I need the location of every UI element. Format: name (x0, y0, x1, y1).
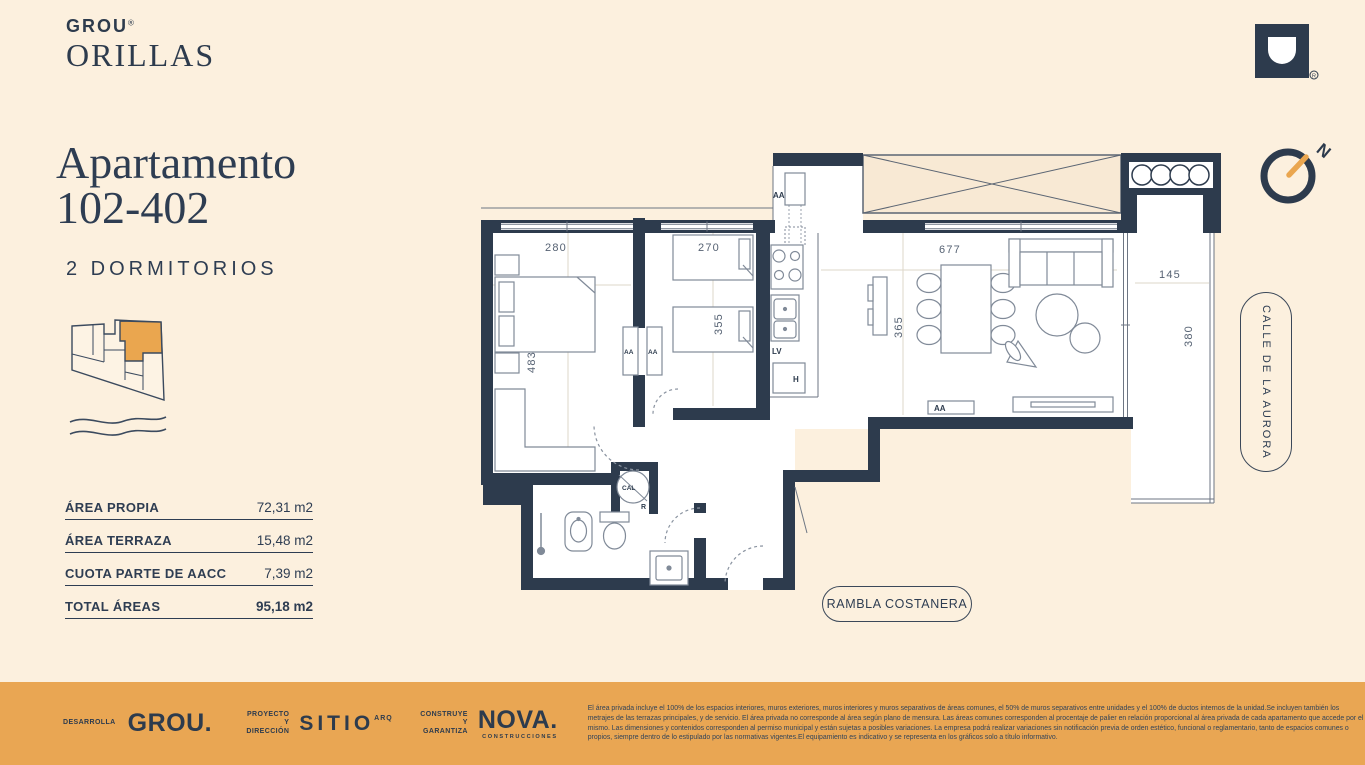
street-label-calle-de-la-aurora: CALLE DE LA AURORA (1240, 292, 1292, 472)
dim-terrace-depth: 380 (1183, 325, 1195, 347)
dim-bed1-depth: 483 (526, 351, 538, 373)
developer-role-label: DESARROLLA (63, 719, 116, 728)
svg-text:R: R (1312, 74, 1316, 80)
area-row-propia: ÁREA PROPIA 72,31 m2 (65, 487, 313, 520)
cal-label: CAL (622, 485, 635, 492)
builder-role-label: CONSTRUYE Y GARANTIZA (417, 711, 468, 737)
brand-logo: GROU® ORILLAS (66, 16, 215, 74)
floor-plan: AA LV H (473, 135, 1233, 625)
nova-subtitle: CONSTRUCCIONES (482, 734, 558, 740)
dim-living-width: 677 (939, 244, 961, 256)
street-label-rambla-costanera: RAMBLA COSTANERA (822, 586, 972, 622)
area-row-terraza: ÁREA TERRAZA 15,48 m2 (65, 520, 313, 553)
dim-bed2-depth: 355 (713, 313, 725, 335)
dim-terrace-width: 145 (1159, 269, 1181, 281)
r-label: R (641, 504, 646, 511)
area-value: 15,48 m2 (257, 533, 313, 548)
title-line-2: 102-402 (56, 185, 296, 230)
dishwasher-label: LV (772, 347, 782, 356)
services-core (1121, 153, 1221, 233)
eave-line (481, 166, 773, 220)
brand-project-name: ORILLAS (66, 37, 215, 74)
sitio-logo: SITIOARQ (299, 712, 392, 736)
title-line-1: Apartamento (56, 140, 296, 185)
area-value: 72,31 m2 (257, 500, 313, 515)
area-label: CUOTA PARTE DE AACC (65, 566, 226, 581)
street-name: CALLE DE LA AURORA (1260, 305, 1272, 460)
area-value: 7,39 m2 (264, 566, 313, 581)
dim-living-depth: 365 (893, 316, 905, 338)
area-label: ÁREA TERRAZA (65, 533, 172, 548)
oven-label: H (793, 375, 799, 384)
compass-north-icon: N (1248, 130, 1343, 215)
dim-bed2-width: 270 (698, 242, 720, 254)
footer: DESARROLLA GROU. PROYECTO Y DIRECCIÓN SI… (0, 682, 1365, 765)
grou-logo: GROU. (128, 711, 212, 736)
registered-mark-icon: ® (128, 19, 136, 28)
dim-bed1-width: 280 (545, 242, 567, 254)
area-table: ÁREA PROPIA 72,31 m2 ÁREA TERRAZA 15,48 … (65, 487, 313, 619)
aa-label: AA (624, 349, 634, 356)
building-locator-map-icon (62, 310, 180, 455)
area-label: TOTAL ÁREAS (65, 599, 160, 614)
area-row-total: TOTAL ÁREAS 95,18 m2 (65, 586, 313, 619)
dining-set (917, 265, 1015, 353)
compass-n-label: N (1313, 140, 1335, 162)
aa-label: AA (773, 191, 785, 200)
sitio-arq-superscript: ARQ (374, 715, 393, 722)
area-row-aacc: CUOTA PARTE DE AACC 7,39 m2 (65, 553, 313, 586)
brand-name: GROU (66, 16, 128, 36)
aa-label: AA (934, 404, 946, 413)
page-title: Apartamento 102-402 (56, 140, 296, 230)
architect-role-label: PROYECTO Y DIRECCIÓN (240, 711, 289, 737)
aa-label: AA (648, 349, 658, 356)
page: GROU® ORILLAS R Apartamento 102-402 2 DO… (0, 0, 1365, 765)
page-subtitle: 2 DORMITORIOS (66, 258, 278, 281)
nova-logo: NOVA. CONSTRUCCIONES (478, 708, 558, 740)
orillas-square-mark-icon: R (1253, 22, 1325, 88)
area-value: 95,18 m2 (256, 599, 313, 614)
void-skylight (863, 155, 1121, 213)
footer-legal-text: El área privada incluye el 100% de los e… (588, 704, 1365, 743)
area-label: ÁREA PROPIA (65, 500, 159, 515)
street-name: RAMBLA COSTANERA (827, 597, 968, 611)
